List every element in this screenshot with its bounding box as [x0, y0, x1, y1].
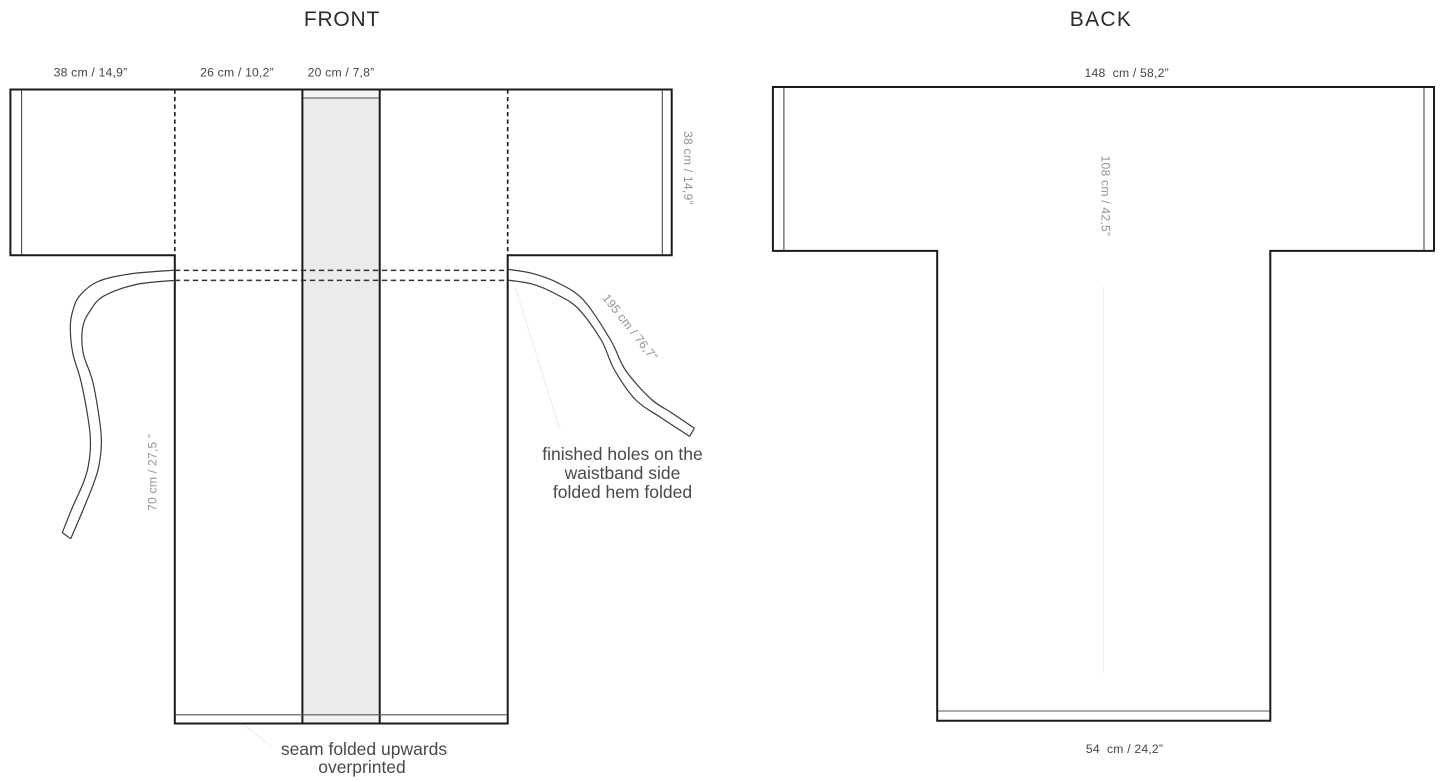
svg-text:seam folded upwards: seam folded upwards — [281, 739, 448, 759]
svg-text:54 cm / 24,2”: 54 cm / 24,2” — [1086, 742, 1163, 756]
svg-text:FRONT: FRONT — [304, 8, 380, 31]
svg-text:BACK: BACK — [1070, 8, 1132, 31]
svg-text:overprinted: overprinted — [318, 757, 406, 777]
svg-text:38 cm / 14,9”: 38 cm / 14,9” — [681, 131, 695, 205]
svg-text:26 cm / 10,2”: 26 cm / 10,2” — [200, 66, 274, 80]
svg-text:70 cm / 27,5 ”: 70 cm / 27,5 ” — [146, 434, 160, 511]
svg-text:38 cm / 14,9”: 38 cm / 14,9” — [54, 66, 128, 80]
svg-text:folded hem folded: folded hem folded — [553, 482, 692, 502]
svg-text:148 cm / 58,2”: 148 cm / 58,2” — [1085, 66, 1169, 80]
svg-text:20 cm / 7,8”: 20 cm / 7,8” — [308, 66, 375, 80]
svg-text:finished holes on the: finished holes on the — [542, 444, 703, 464]
svg-text:waistband side: waistband side — [564, 463, 681, 483]
svg-text:108 cm / 42,5”: 108 cm / 42,5” — [1099, 156, 1113, 237]
